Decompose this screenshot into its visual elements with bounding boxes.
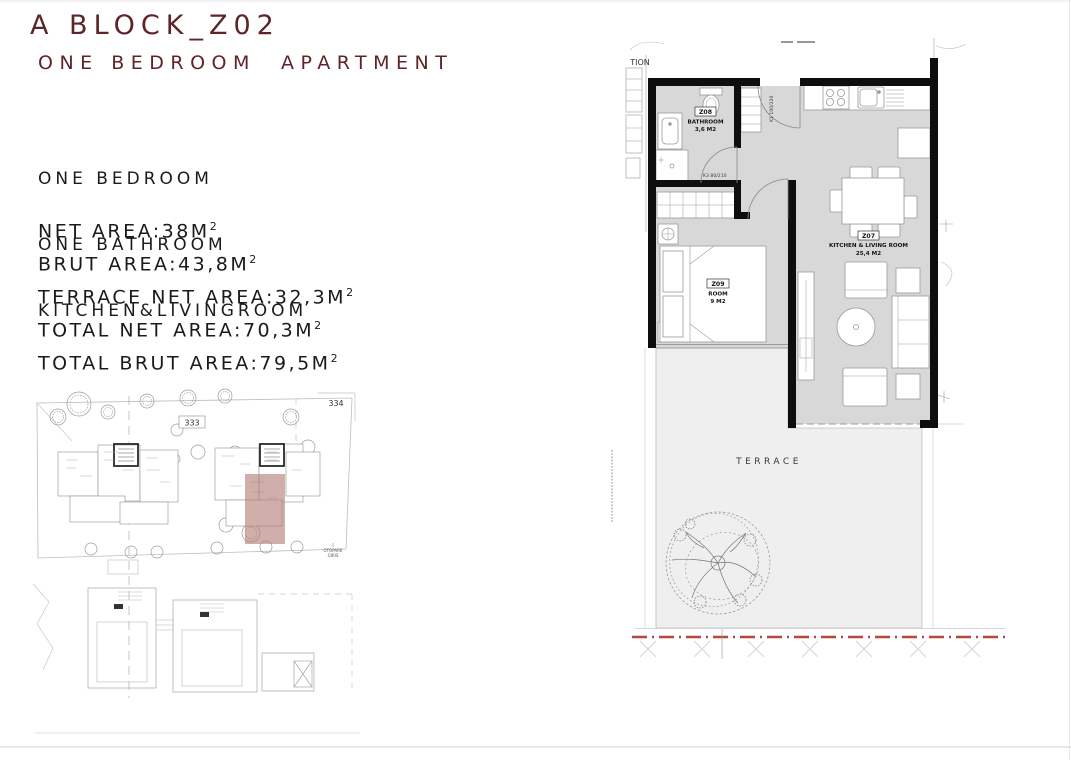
site-lower-buildings: [33, 560, 360, 733]
bathroom-door-label: K3 80/210: [703, 173, 727, 179]
bedroom-area: 9 M2: [710, 299, 725, 305]
chair: [878, 224, 900, 237]
bedroom-name: ROOM: [708, 292, 728, 298]
parcel-label-333: 333: [184, 419, 199, 428]
living-area: 25,4 M2: [856, 251, 881, 257]
chair: [830, 190, 843, 212]
floorplan-sheet: A BLOCK_Z02 ONE BEDROOM APARTMENT ONE BE…: [0, 0, 1071, 760]
dining-table: [842, 178, 904, 224]
entry-closet: [741, 88, 761, 132]
pillow: [663, 251, 683, 292]
bedroom-code: Z09: [711, 281, 724, 288]
coffee-table: [837, 308, 875, 346]
fence-marks: [640, 641, 980, 657]
shower: [656, 150, 688, 181]
side-table: [896, 374, 920, 399]
sofa: [892, 296, 929, 368]
living-name: KITCHEN & LIVING ROOM: [829, 243, 908, 249]
fridge: [898, 128, 930, 158]
kitchen-sink: [858, 87, 884, 108]
chair: [904, 196, 917, 218]
adjacent-cut-text: TION: [629, 58, 650, 67]
armchair: [845, 262, 887, 298]
entry-door-label: K1 100/220: [769, 95, 775, 122]
stove: [823, 86, 849, 109]
bathroom-area: 3,6 M2: [695, 127, 716, 133]
site-highlighted-unit: [245, 474, 285, 544]
site-plan: 333 334 OTOPARK GIRIS: [33, 389, 360, 733]
architectural-drawing: 333 334 OTOPARK GIRIS: [0, 0, 1071, 760]
parking-label-2: GIRIS: [328, 553, 339, 558]
armchair: [843, 368, 887, 406]
living-code: Z07: [862, 233, 875, 240]
terrace-label: TERRACE: [735, 457, 802, 467]
bathroom-code: Z08: [699, 109, 712, 116]
side-table: [896, 268, 920, 293]
bathroom-name: BATHROOM: [687, 120, 723, 126]
toilet: [700, 88, 722, 95]
floor-plan: Z08 BATHROOM 3,6 M2 Z09 ROOM 9 M2 Z07 KI…: [612, 38, 1008, 659]
adjacent-unit: [626, 68, 642, 178]
pillow: [663, 296, 683, 337]
parcel-label-334: 334: [328, 399, 343, 408]
